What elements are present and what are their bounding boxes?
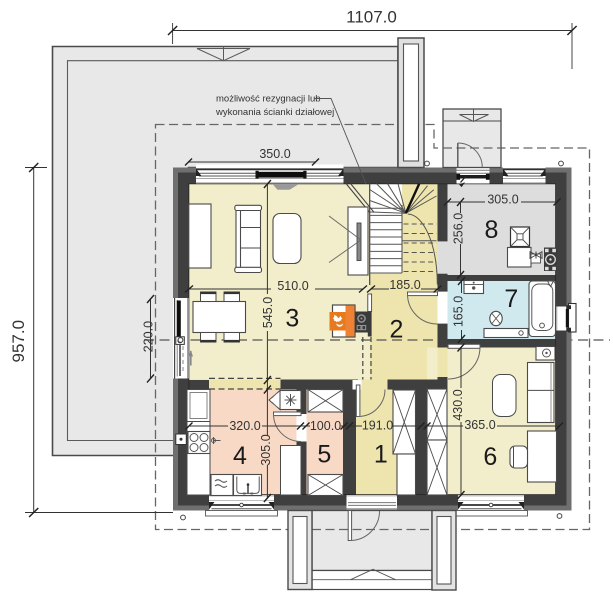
svg-text:8: 8	[485, 216, 499, 244]
svg-text:4: 4	[233, 442, 247, 470]
svg-text:957.0: 957.0	[9, 320, 28, 363]
svg-text:430.0: 430.0	[451, 389, 465, 420]
svg-text:wykonania ścianki działowej: wykonania ścianki działowej	[215, 107, 334, 118]
svg-text:545.0: 545.0	[261, 297, 275, 328]
svg-text:7: 7	[504, 285, 518, 313]
svg-text:2: 2	[389, 316, 403, 344]
svg-text:350.0: 350.0	[259, 147, 290, 161]
svg-text:191.0: 191.0	[362, 419, 393, 433]
svg-text:320.0: 320.0	[229, 419, 260, 433]
svg-text:305.0: 305.0	[487, 193, 518, 207]
svg-text:6: 6	[483, 443, 497, 471]
svg-text:możliwość rezygnacji lub: możliwość rezygnacji lub	[216, 94, 321, 105]
svg-text:1: 1	[374, 441, 388, 469]
svg-text:3: 3	[285, 305, 299, 333]
svg-text:510.0: 510.0	[277, 279, 308, 293]
svg-text:1107.0: 1107.0	[346, 8, 397, 27]
svg-text:305.0: 305.0	[259, 434, 273, 465]
svg-text:365.0: 365.0	[464, 418, 495, 432]
svg-text:185.0: 185.0	[389, 278, 420, 292]
svg-text:5: 5	[317, 441, 331, 469]
svg-text:256.0: 256.0	[452, 213, 466, 244]
svg-text:220.0: 220.0	[142, 321, 156, 352]
svg-text:100.0: 100.0	[310, 419, 341, 433]
svg-text:165.0: 165.0	[452, 296, 466, 327]
